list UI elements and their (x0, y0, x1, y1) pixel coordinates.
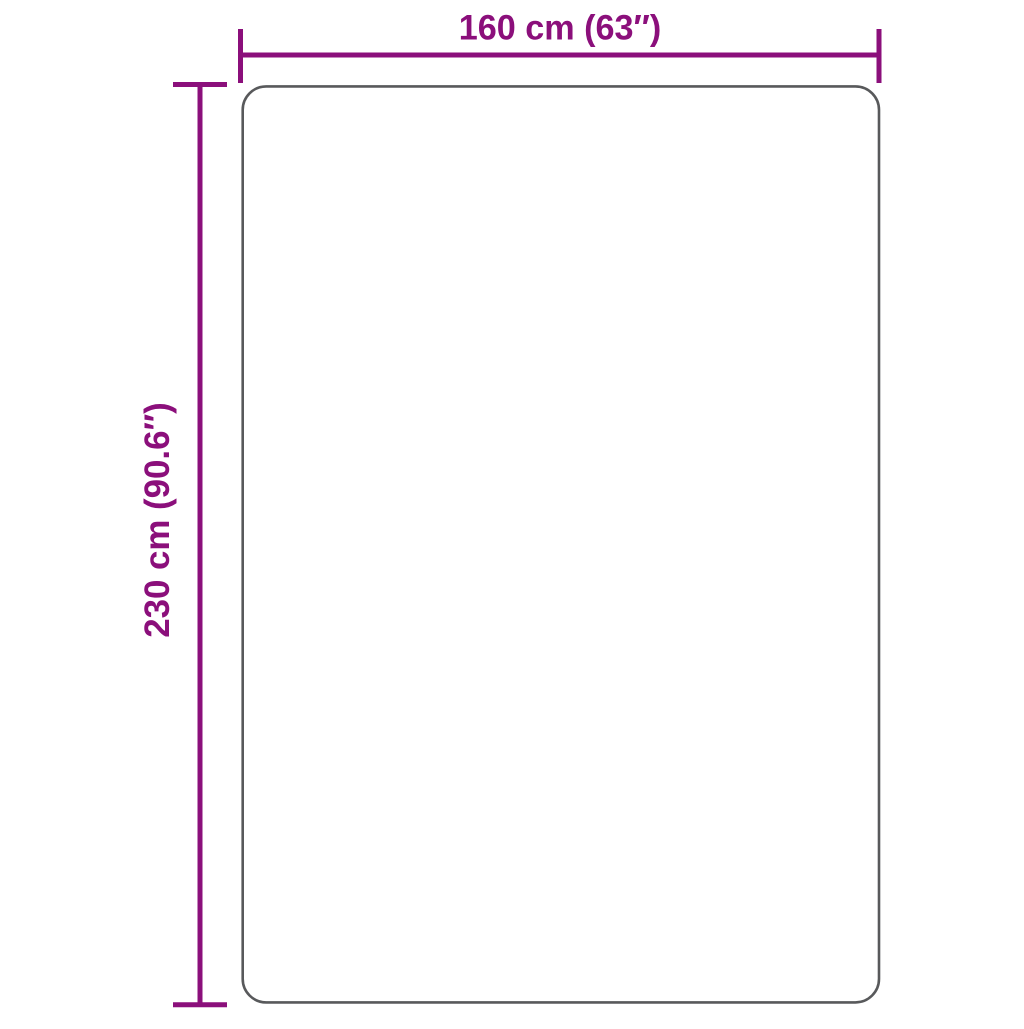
svg-text:160 cm (63″): 160 cm (63″) (459, 8, 662, 48)
svg-text:230 cm (90.6″): 230 cm (90.6″) (137, 402, 177, 638)
